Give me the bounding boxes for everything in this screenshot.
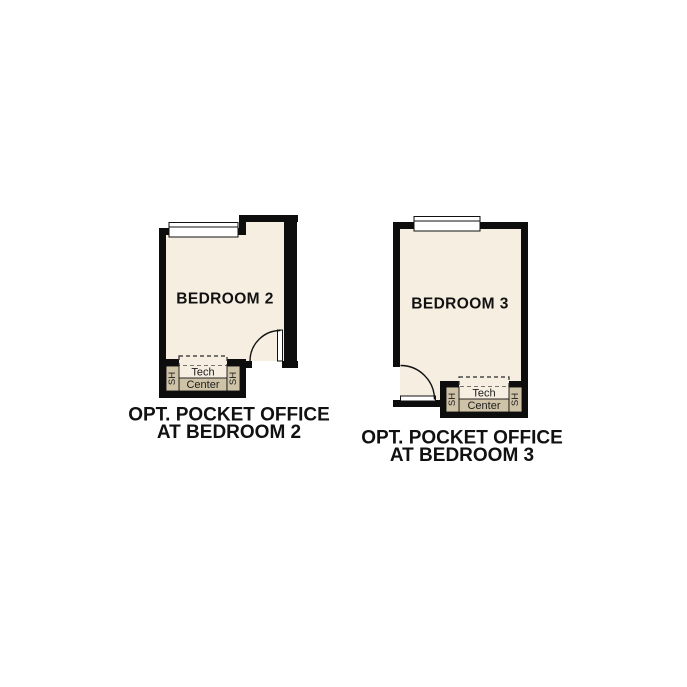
wall — [282, 361, 298, 368]
bedroom3-caption: OPT. POCKET OFFICE AT BEDROOM 3 — [361, 428, 563, 467]
wall — [159, 228, 166, 365]
caption-line-2: AT BEDROOM 3 — [390, 445, 534, 466]
shelf-right-label: SH — [510, 393, 521, 406]
bedroom2-window-icon — [169, 223, 238, 238]
bedroom3-door-leaf — [401, 396, 436, 401]
tech-label: Tech — [472, 388, 495, 400]
bedroom3-room-label: BEDROOM 3 — [411, 296, 508, 313]
caption-line-2: AT BEDROOM 2 — [157, 422, 301, 443]
upper-cabinet-dashed — [179, 356, 227, 366]
bedroom3-window-icon — [414, 217, 480, 232]
upper-cabinet-dashed — [459, 377, 509, 387]
bedroom2-caption: OPT. POCKET OFFICE AT BEDROOM 2 — [128, 405, 330, 444]
bedroom2-door-leaf — [278, 330, 283, 361]
bedroom2-room-label: BEDROOM 2 — [176, 291, 273, 308]
shelf-left-label: SH — [167, 372, 178, 385]
floor-plan-diagram: SH SH Tech Center BEDROOM 2 OPT. POCKET … — [0, 0, 687, 687]
tech-label: Tech — [191, 367, 214, 379]
bedroom3-floor — [400, 229, 521, 402]
shelf-left-label: SH — [447, 393, 458, 406]
bedroom2-plan: SH SH Tech Center BEDROOM 2 OPT. POCKET … — [128, 215, 330, 443]
wall — [284, 215, 297, 368]
shelf-right-label: SH — [228, 372, 239, 385]
wall — [393, 222, 400, 367]
center-label: Center — [186, 379, 219, 391]
bedroom3-plan: SH SH Tech Center BEDROOM 3 OPT. POCKET … — [361, 217, 563, 467]
bedroom2-tech-center: SH SH Tech Center — [159, 356, 246, 398]
bedroom3-tech-center: SH SH Tech Center — [440, 377, 528, 418]
center-label: Center — [467, 400, 500, 412]
bedroom2-floor-step — [245, 222, 284, 236]
